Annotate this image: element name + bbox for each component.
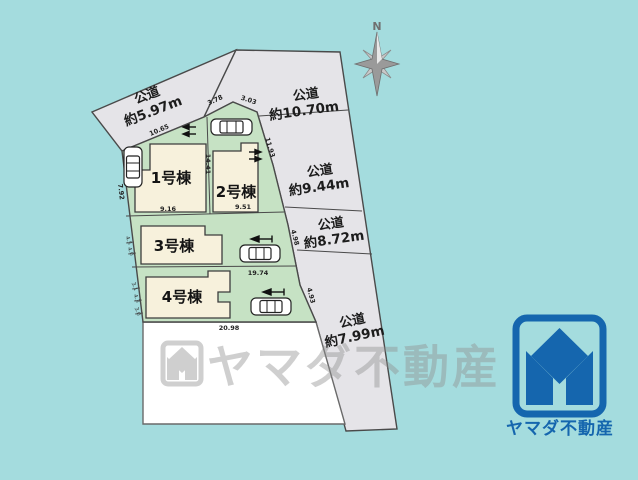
car-plot1 xyxy=(124,147,142,187)
building-1-label: 1号棟 xyxy=(151,169,192,187)
watermark: ヤマダ不動産 xyxy=(163,340,501,394)
dim-boundary-1-2: 14.41 xyxy=(204,154,212,175)
logo-text: ヤマダ不動産 xyxy=(506,418,614,439)
dim-mid-right: 9.51 xyxy=(235,203,252,211)
dim-plot3-4-boundary: 19.74 xyxy=(248,269,269,277)
dim-mid-left: 9.16 xyxy=(160,205,177,213)
car-plot2 xyxy=(211,119,252,135)
building-4-label: 4号棟 xyxy=(162,288,203,306)
building-2-footprint xyxy=(213,143,258,212)
building-3-label: 3号棟 xyxy=(154,237,195,255)
site-plan-canvas: 1号棟 2号棟 3号棟 4号棟 xyxy=(0,0,638,480)
car-plot3 xyxy=(240,245,280,262)
building-2-label: 2号棟 xyxy=(216,183,257,201)
compass-n-label: N xyxy=(372,20,381,33)
watermark-text: ヤマダ不動産 xyxy=(207,340,501,394)
dim-plot4-bottom: 20.98 xyxy=(219,324,240,332)
car-plot4 xyxy=(251,298,291,315)
